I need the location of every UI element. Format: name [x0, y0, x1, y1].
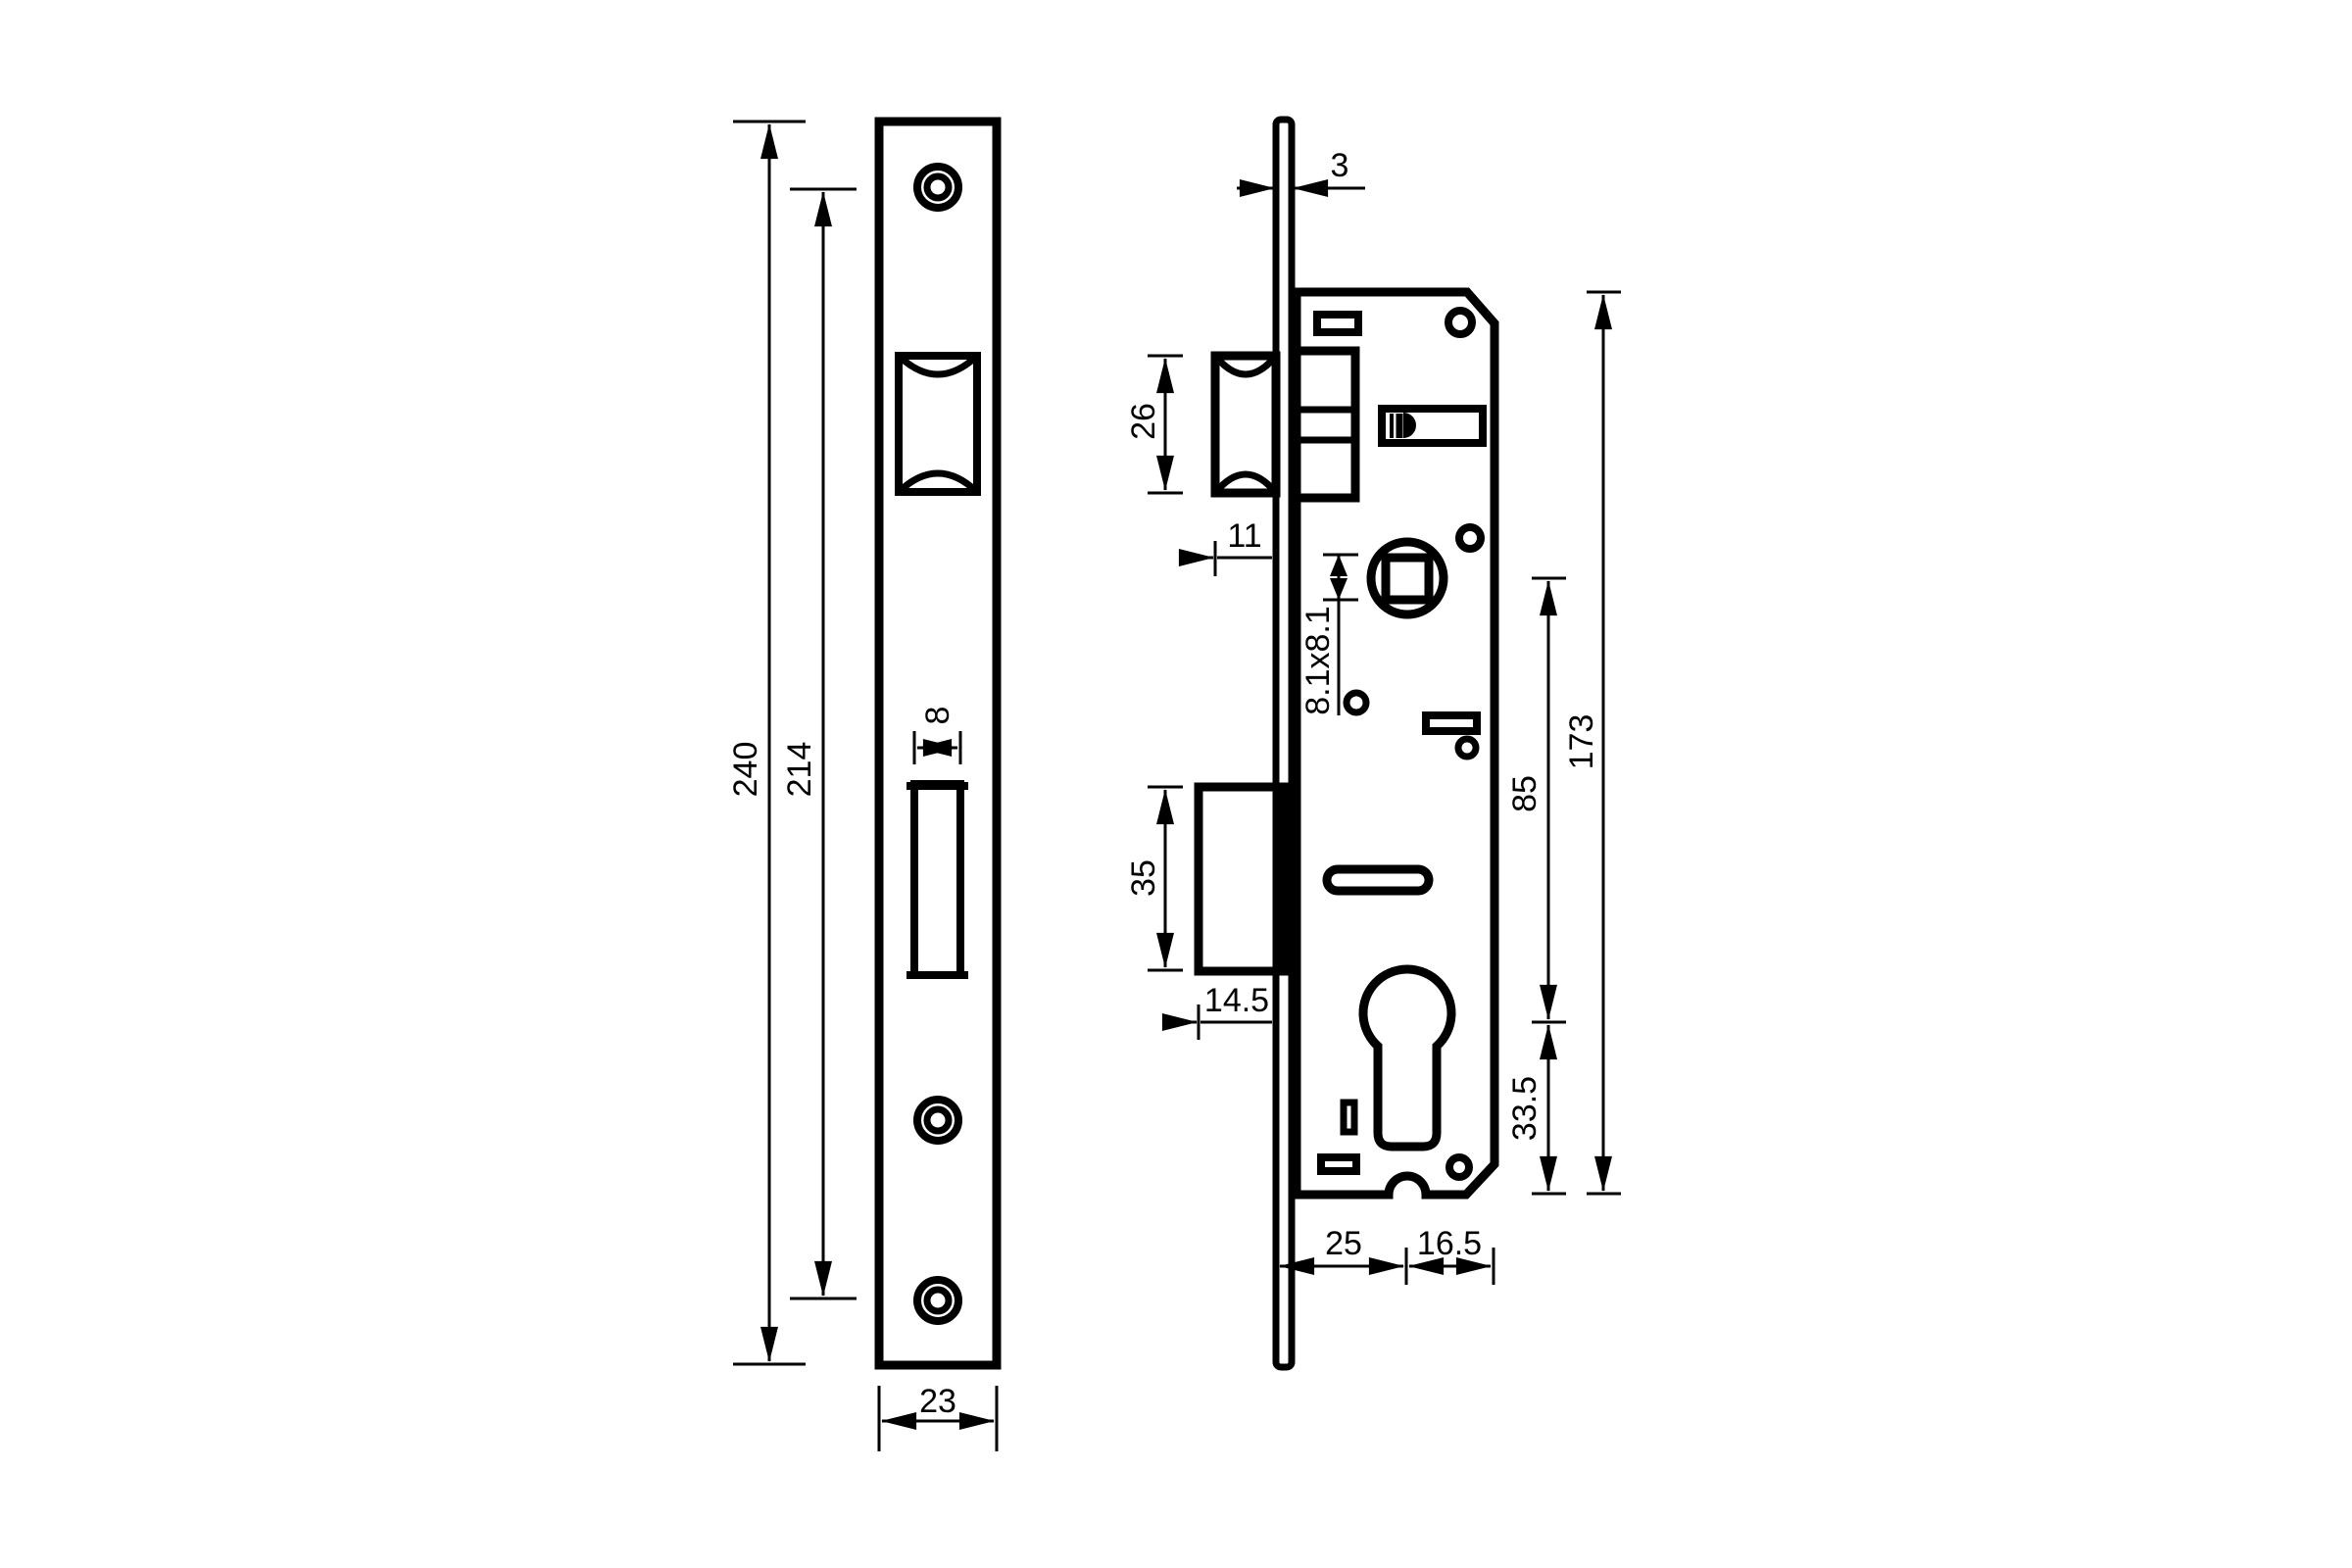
dim-plate-thickness: 3 — [1237, 147, 1365, 188]
latch-roller — [1215, 356, 1276, 493]
screw-hole-top — [917, 167, 958, 208]
dim-latch-height: 26 — [1125, 356, 1183, 493]
dim-bolt-height-label: 35 — [1125, 859, 1162, 897]
spindle-slot — [906, 784, 968, 975]
euro-cylinder-hole — [1363, 969, 1451, 1147]
handle-slot-oval — [1327, 869, 1429, 891]
faceplate-edge-outline — [1276, 120, 1292, 1367]
dim-backset-label: 25 — [1325, 1225, 1362, 1262]
lock-body-side-view: 3 26 11 8.1x8.1 — [1125, 120, 1621, 1367]
screw-hole-middle — [917, 1100, 958, 1141]
dim-body-behind-axis: 16.5 — [1409, 1225, 1494, 1285]
dim-body-behind-axis-label: 16.5 — [1417, 1225, 1482, 1262]
mounting-hole-top-right — [1448, 311, 1472, 334]
fixing-slot-top-left — [1317, 315, 1358, 332]
dim-plate-width: 23 — [879, 1383, 997, 1451]
dim-cylinder-to-bottom-label: 33.5 — [1506, 1076, 1543, 1141]
technical-drawing-canvas: 240 214 8 23 — [0, 0, 2352, 1568]
dim-body-height: 173 — [1563, 292, 1621, 1194]
faceplate-front-view: 240 214 8 23 — [727, 122, 997, 1451]
technical-drawing-page: 240 214 8 23 — [0, 0, 2352, 1568]
faceplate-outline — [879, 122, 997, 1365]
deadbolt — [1199, 787, 1284, 971]
fixing-slot-bottom-left — [1321, 1157, 1356, 1171]
mounting-hole-bottom-right — [1449, 1157, 1469, 1177]
dim-bolt-projection: 14.5 — [1164, 982, 1272, 1040]
spindle-hub — [1371, 542, 1444, 614]
dim-bolt-height: 35 — [1125, 787, 1183, 970]
dim-axis-distance-label: 85 — [1506, 775, 1543, 812]
dim-axis-distance: 85 — [1506, 578, 1566, 1022]
latch-housing — [1297, 351, 1355, 498]
dim-spindle-square-label: 8.1x8.1 — [1299, 606, 1337, 715]
dim-plate-width-label: 23 — [919, 1383, 956, 1420]
dim-latch-height-label: 26 — [1125, 403, 1162, 440]
dim-bolt-projection-label: 14.5 — [1204, 982, 1269, 1019]
pin-hole-right — [1459, 527, 1481, 549]
dim-plate-thickness-label: 3 — [1331, 147, 1349, 184]
dim-latch-projection-label: 11 — [1227, 517, 1261, 555]
dim-slot-width-label: 8 — [919, 707, 956, 725]
roller-cutout — [899, 356, 977, 492]
latch-tail — [1382, 409, 1483, 443]
dim-hole-spacing-label: 214 — [781, 742, 818, 798]
dim-cylinder-to-bottom: 33.5 — [1506, 1025, 1566, 1194]
dim-hole-spacing: 214 — [781, 189, 857, 1298]
dim-backset: 25 — [1280, 1225, 1406, 1285]
dim-latch-projection: 11 — [1181, 517, 1272, 576]
dim-body-height-label: 173 — [1563, 714, 1600, 770]
dim-overall-height-label: 240 — [727, 742, 764, 798]
screw-hole-bottom — [917, 1280, 958, 1321]
